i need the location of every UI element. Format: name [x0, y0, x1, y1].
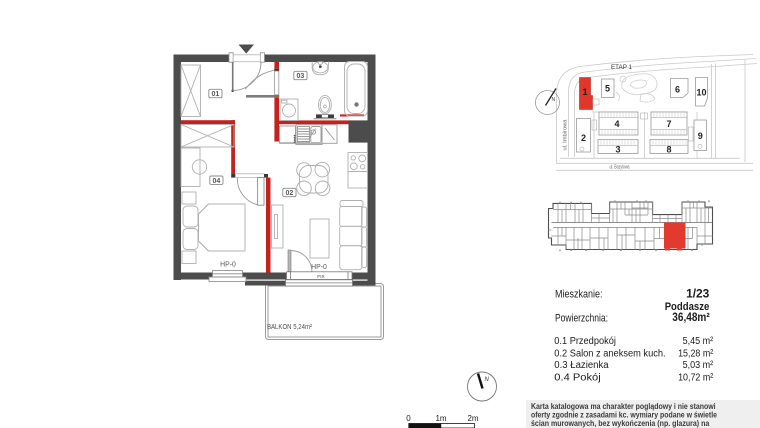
svg-text:2: 2: [581, 133, 586, 143]
svg-text:FIX: FIX: [317, 274, 325, 280]
svg-text:0.3 Łazienka: 0.3 Łazienka: [554, 360, 609, 371]
svg-text:Powierzchnia:: Powierzchnia:: [555, 313, 608, 325]
svg-text:10,72 m²: 10,72 m²: [678, 373, 714, 384]
svg-text:2m: 2m: [467, 414, 478, 423]
svg-text:5: 5: [605, 84, 610, 94]
svg-text:oferty zgodnie z zasadami kc.: oferty zgodnie z zasadami kc. wymiary po…: [531, 411, 717, 420]
svg-text:1m: 1m: [435, 414, 446, 423]
svg-text:5,03 m²: 5,03 m²: [683, 360, 714, 371]
svg-text:5,45 m²: 5,45 m²: [683, 336, 714, 347]
svg-text:ETAP 1: ETAP 1: [611, 64, 632, 71]
svg-text:BALKON 5,24m²: BALKON 5,24m²: [267, 322, 312, 331]
svg-text:HP-0: HP-0: [311, 262, 327, 271]
svg-text:36,48m²: 36,48m²: [672, 310, 709, 324]
svg-text:6: 6: [675, 85, 680, 95]
svg-text:HP-0: HP-0: [220, 260, 236, 269]
svg-text:1: 1: [582, 87, 587, 97]
svg-text:ul. Imbirowa: ul. Imbirowa: [563, 119, 569, 150]
svg-text:03: 03: [297, 73, 305, 80]
svg-text:3: 3: [615, 145, 620, 155]
svg-text:0.4 Pokój: 0.4 Pokój: [554, 373, 600, 384]
svg-text:02: 02: [286, 190, 294, 197]
svg-text:Mieszkanie:: Mieszkanie:: [555, 289, 603, 301]
svg-text:9: 9: [698, 131, 703, 141]
svg-text:N: N: [485, 377, 490, 383]
svg-text:01: 01: [212, 91, 220, 98]
svg-text:0.2 Salon z aneksem kuch.: 0.2 Salon z aneksem kuch.: [554, 348, 665, 359]
svg-text:4: 4: [614, 119, 619, 129]
svg-text:N: N: [552, 97, 556, 103]
svg-text:0: 0: [406, 414, 411, 423]
svg-text:10: 10: [696, 88, 706, 98]
svg-text:ścian murowanych, bez wykończ: ścian murowanych, bez wykończenia (np. g…: [531, 419, 710, 428]
svg-text:04: 04: [213, 178, 221, 185]
svg-text:1/23: 1/23: [686, 287, 710, 301]
svg-text:ul. Bazylowa: ul. Bazylowa: [610, 164, 630, 170]
svg-text:0.1 Przedpokój: 0.1 Przedpokój: [554, 336, 616, 347]
svg-text:15,28 m²: 15,28 m²: [678, 348, 714, 359]
svg-text:8: 8: [666, 145, 671, 155]
svg-text:Karta katalogowa ma charakter: Karta katalogowa ma charakter poglądowy …: [531, 402, 716, 411]
svg-text:7: 7: [666, 119, 671, 129]
